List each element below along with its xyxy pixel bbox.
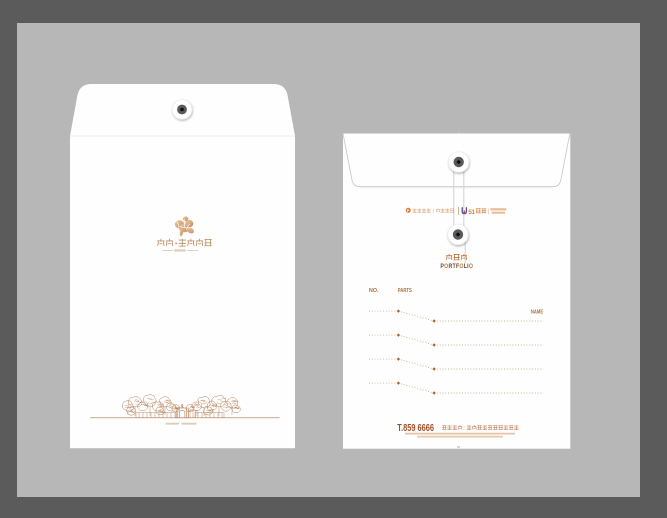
svg-text:T.859 6666: T.859 6666	[397, 422, 434, 433]
svg-text:NO.: NO.	[369, 288, 379, 294]
svg-text:NAME: NAME	[531, 309, 544, 316]
svg-text:P: P	[407, 209, 410, 213]
svg-text::: :	[463, 426, 464, 432]
svg-text:PORTFOLIO: PORTFOLIO	[440, 264, 473, 270]
svg-text:PARTS: PARTS	[398, 287, 413, 294]
svg-text:51: 51	[468, 209, 475, 216]
